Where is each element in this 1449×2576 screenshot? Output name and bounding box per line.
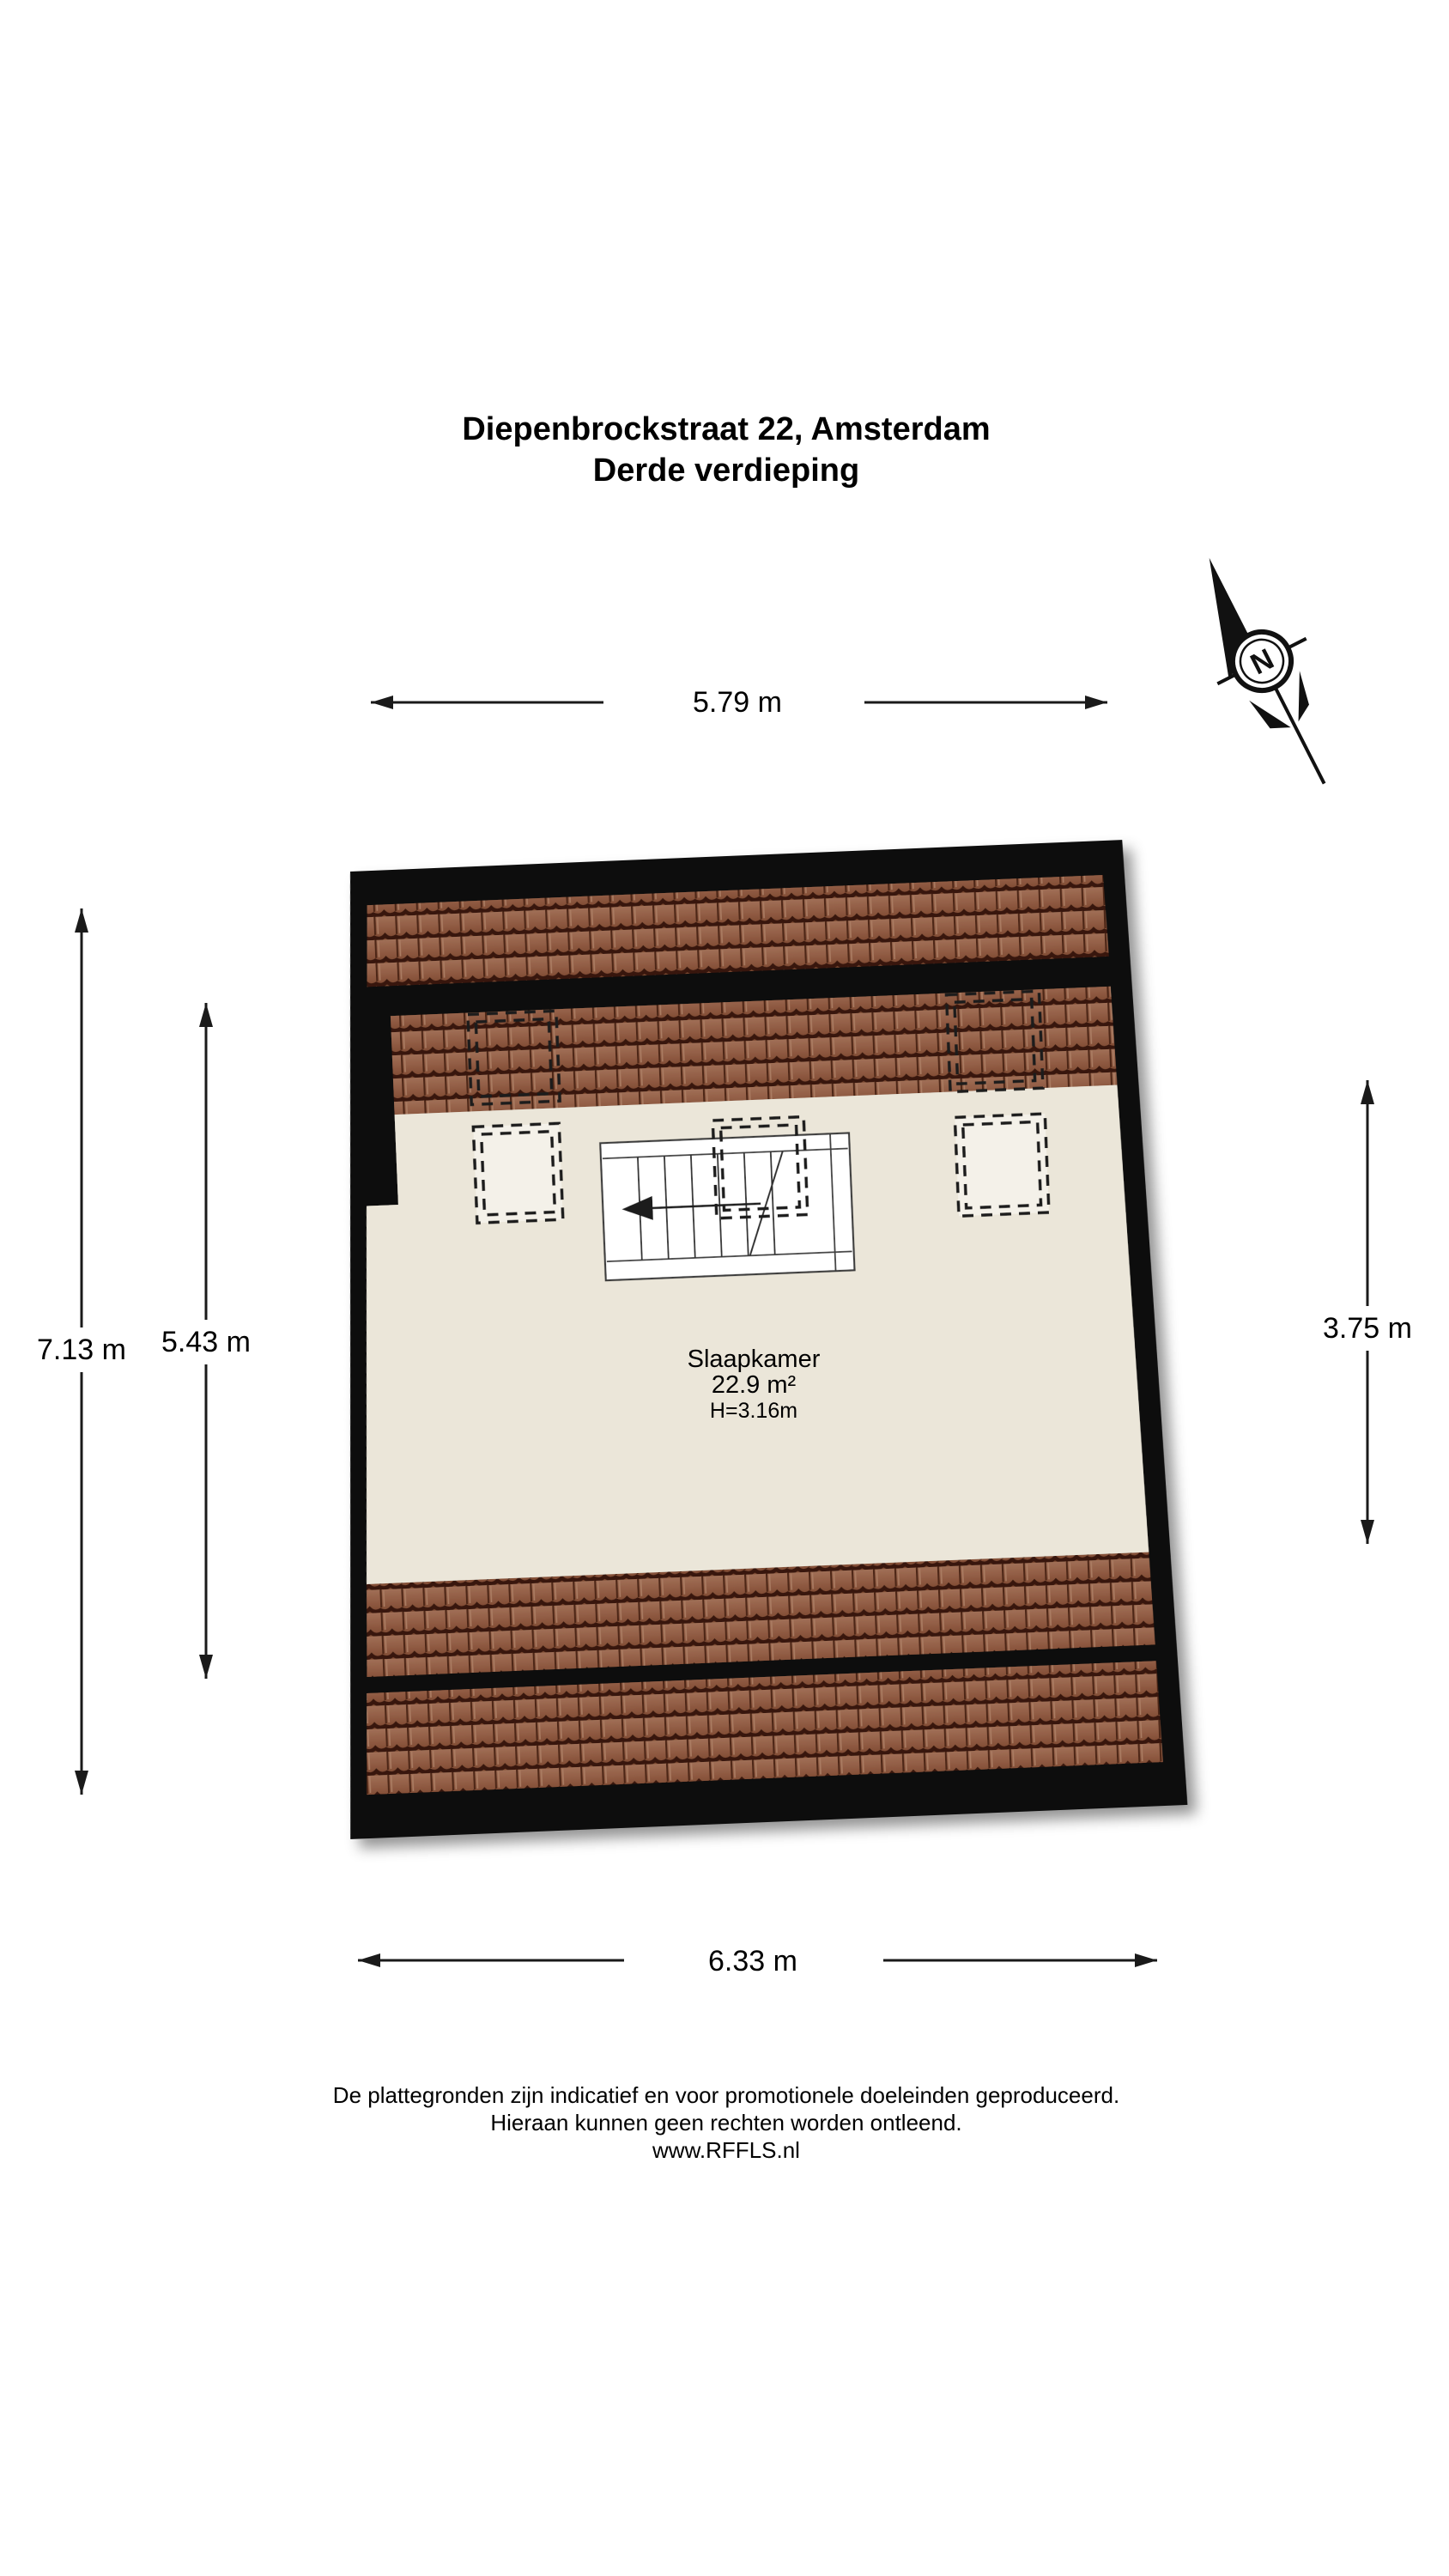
skylight-left	[473, 1123, 563, 1223]
room-area: 22.9 m²	[688, 1372, 821, 1398]
room-name: Slaapkamer	[688, 1346, 821, 1372]
dimension-label-left-outer: 7.13 m	[37, 1334, 126, 1366]
compass-rose-icon: N	[1165, 535, 1368, 806]
room-height: H=3.16m	[688, 1398, 821, 1424]
skylight-right	[955, 1114, 1049, 1216]
dimension-label-right: 3.75 m	[1323, 1312, 1412, 1345]
floorplan-page: Diepenbrockstraat 22, Amsterdam Derde ve…	[0, 0, 1449, 2576]
dimension-label-bottom: 6.33 m	[708, 1945, 797, 1978]
dimension-label-left-inner: 5.43 m	[161, 1326, 251, 1358]
floorplan-drawing: 5.79 m 6.33 m 7.13 m 5.43 m 3.75 m N	[0, 0, 1449, 2576]
disclaimer-url: www.RFFLS.nl	[333, 2136, 1119, 2164]
dimension-label-top: 5.79 m	[693, 686, 782, 719]
room-label: Slaapkamer 22.9 m² H=3.16m	[688, 1346, 821, 1424]
disclaimer: De plattegronden zijn indicatief en voor…	[333, 2081, 1119, 2164]
floorplan-plan	[311, 839, 1187, 1839]
disclaimer-line-2: Hieraan kunnen geen rechten worden ontle…	[333, 2109, 1119, 2136]
staircase	[600, 1133, 854, 1280]
disclaimer-line-1: De plattegronden zijn indicatief en voor…	[333, 2081, 1119, 2109]
